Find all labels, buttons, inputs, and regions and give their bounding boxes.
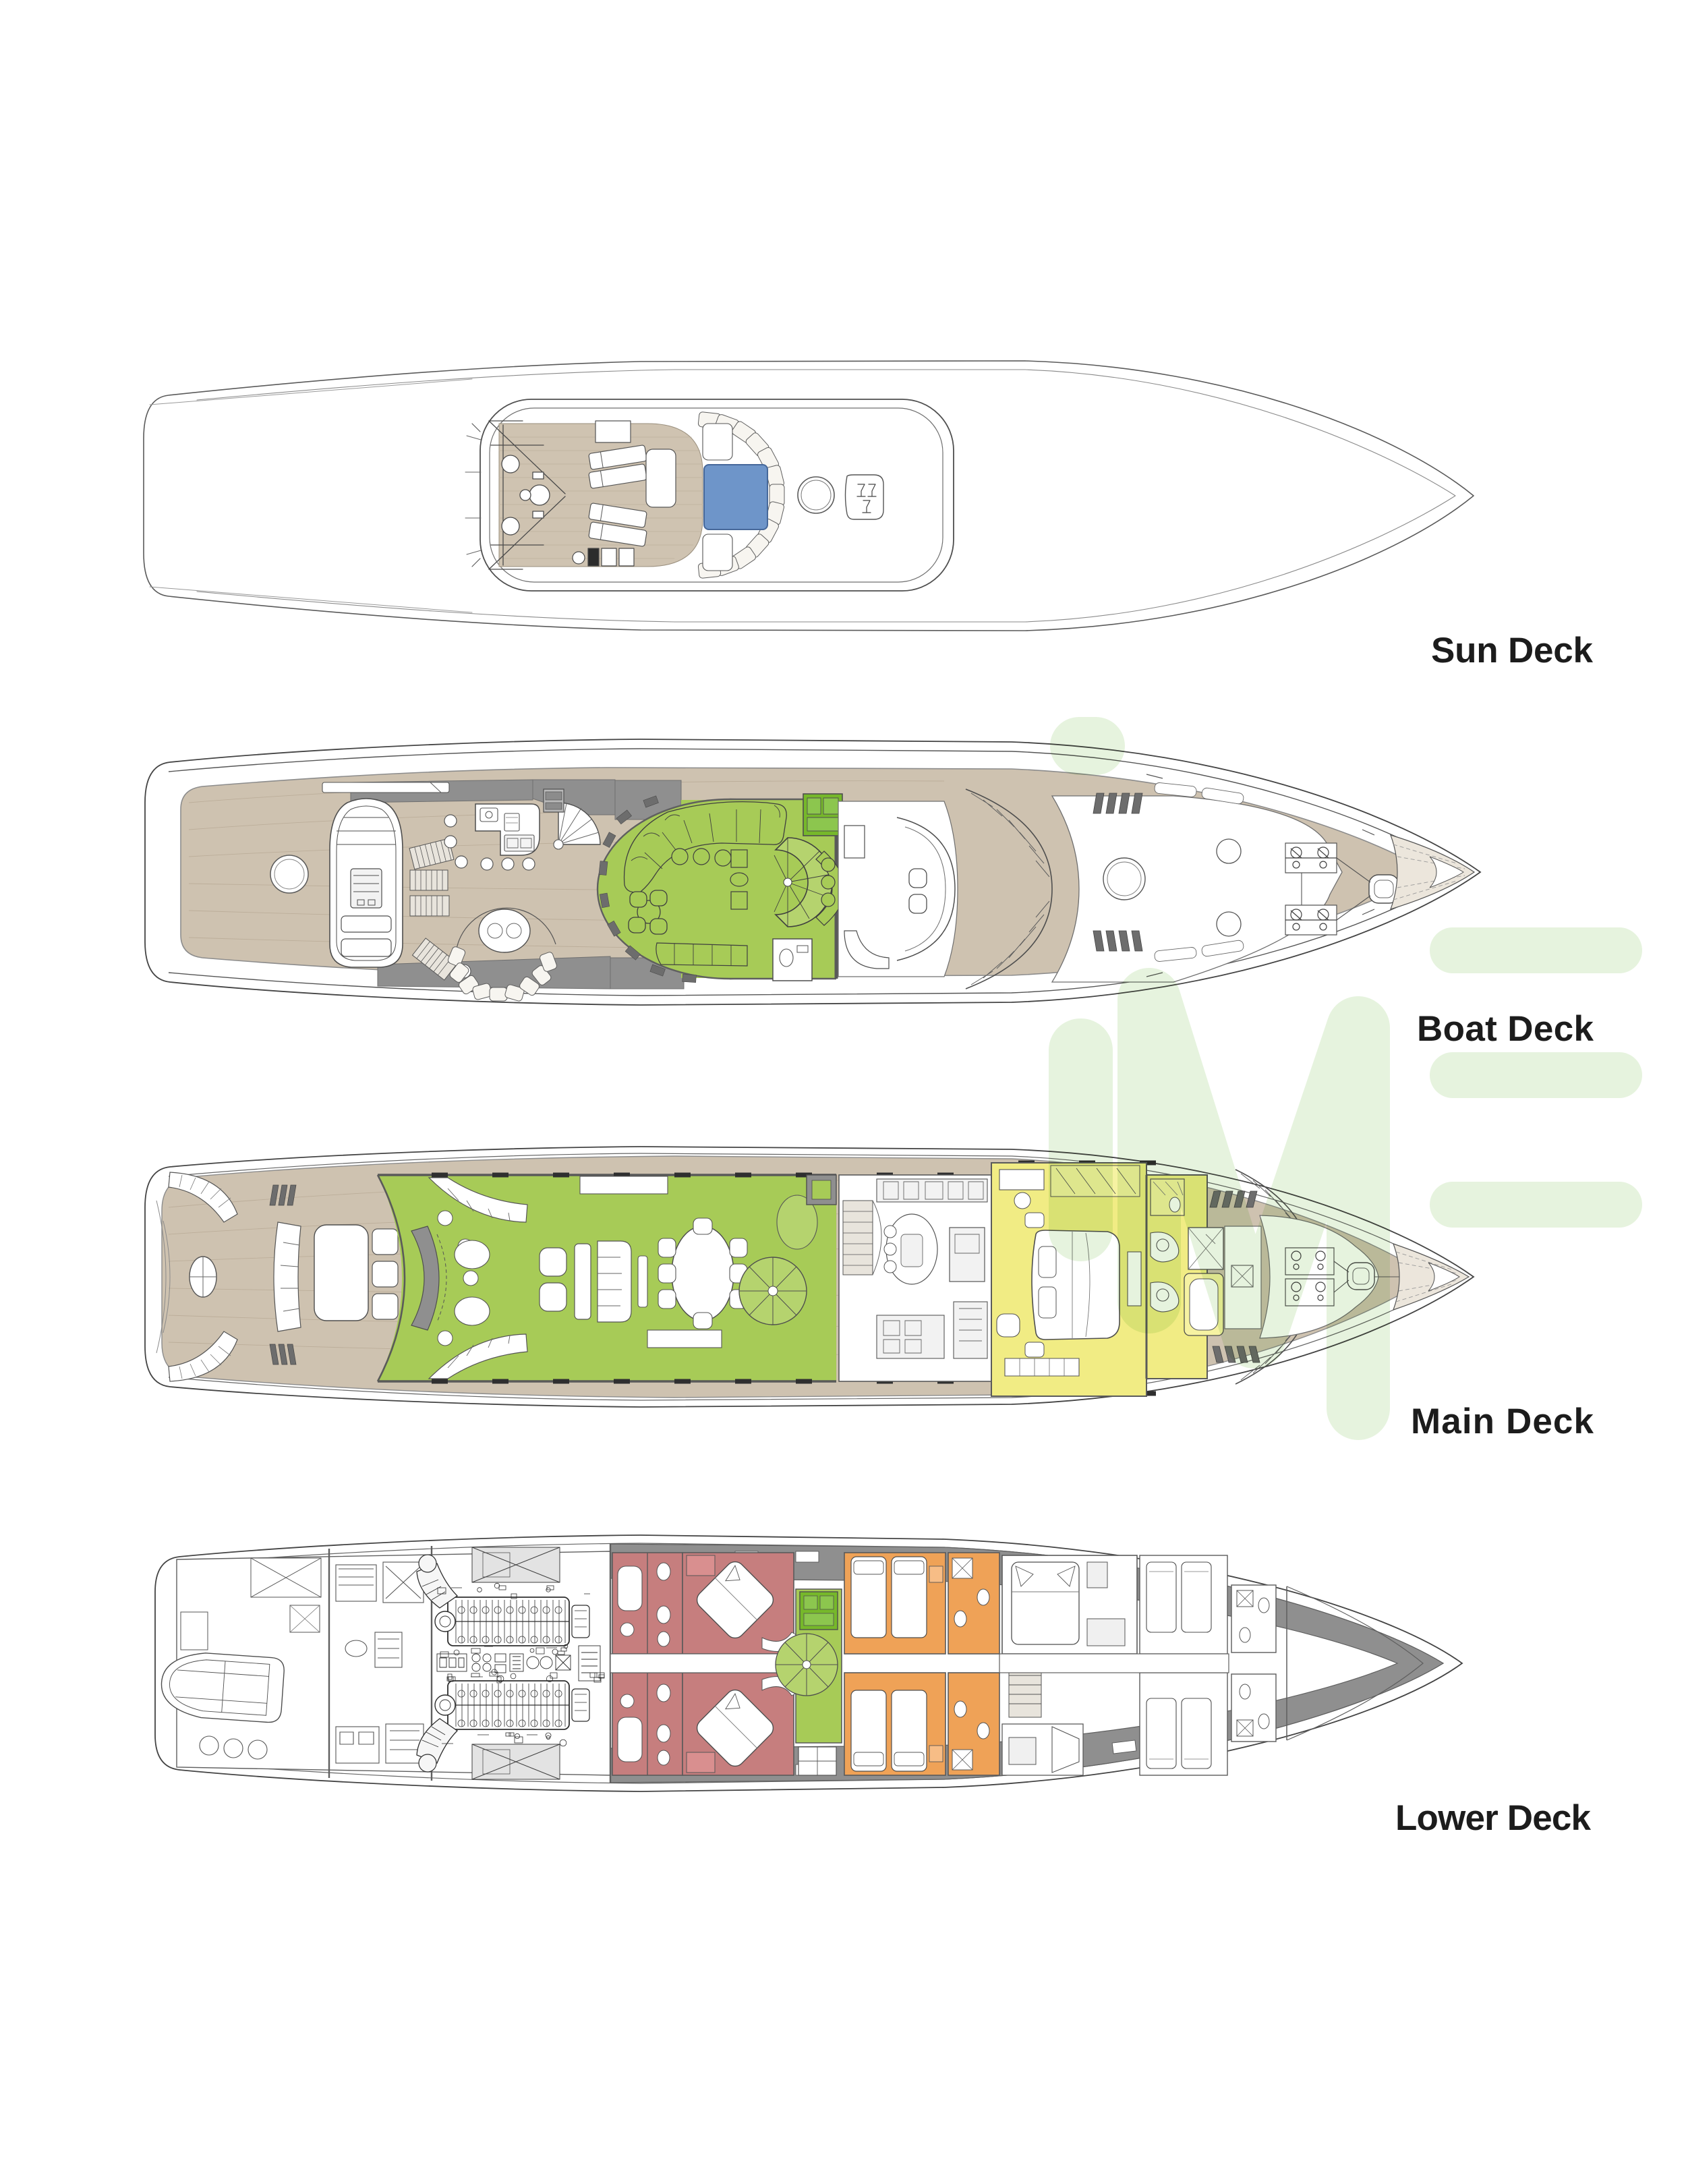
svg-text:Sun Deck: Sun Deck — [1431, 631, 1594, 670]
svg-text:Lower Deck: Lower Deck — [1395, 1798, 1592, 1838]
svg-text:Boat Deck: Boat Deck — [1417, 1009, 1594, 1049]
svg-text:Main Deck: Main Deck — [1411, 1402, 1594, 1441]
